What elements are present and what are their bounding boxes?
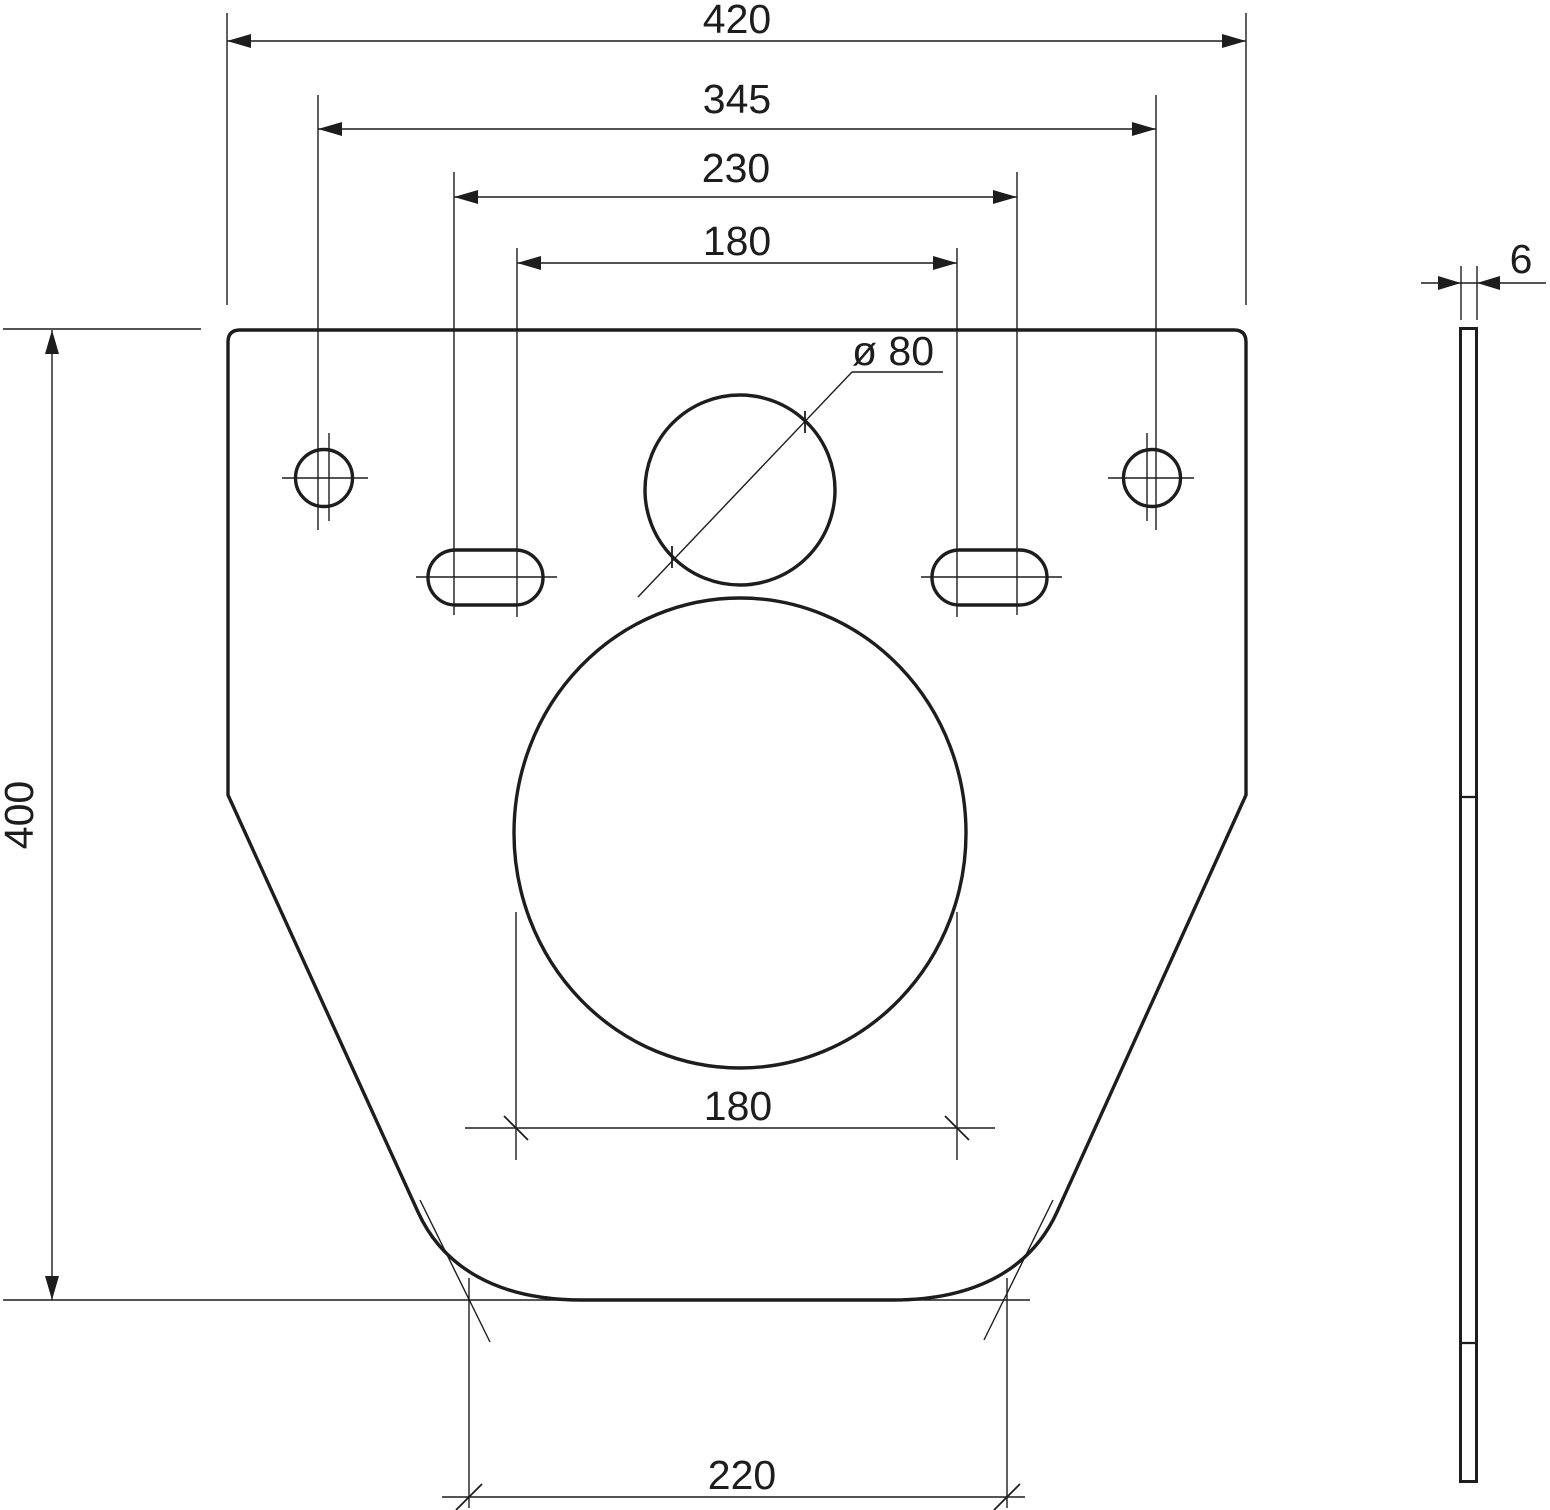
dim-label-345: 345 [703, 76, 771, 122]
dim-label-220: 220 [708, 1452, 776, 1498]
tangent-extension-left [420, 1200, 490, 1342]
dim-label-230: 230 [702, 145, 770, 191]
arrow-down-icon [45, 1276, 59, 1300]
arrow-left-icon [1477, 276, 1500, 290]
tangent-extension-right [984, 1200, 1053, 1340]
dim-label-420: 420 [703, 0, 771, 42]
dimension-220: 220 [420, 1200, 1053, 1510]
drain-opening-ellipse [514, 598, 966, 1068]
arrow-left-icon [227, 34, 251, 48]
technical-drawing-canvas: 420 345 230 180 ø 80 [0, 0, 1550, 1510]
dimension-180-top: 180 [517, 218, 957, 617]
arrow-right-icon [933, 256, 957, 270]
technical-drawing-page: 420 345 230 180 ø 80 [0, 0, 1550, 1510]
dimension-6: 6 [1421, 236, 1546, 320]
plate-outline [228, 330, 1246, 1300]
leader-diagonal [638, 372, 852, 597]
side-profile [1461, 329, 1477, 1482]
arrow-right-icon [1132, 122, 1156, 136]
dim-label-180-top: 180 [703, 218, 771, 264]
arrow-right-icon [993, 190, 1017, 204]
arrow-up-icon [45, 330, 59, 354]
arrow-right-icon [1222, 34, 1246, 48]
front-view [228, 330, 1246, 1300]
arrow-left-icon [517, 256, 541, 270]
dimension-diameter-80: ø 80 [638, 328, 943, 597]
arrow-left-icon [454, 190, 478, 204]
dim-label-diameter-80: ø 80 [852, 328, 934, 374]
side-view [1459, 329, 1478, 1482]
arrow-left-icon [318, 122, 342, 136]
dim-label-400: 400 [0, 781, 42, 849]
dim-label-6: 6 [1510, 236, 1533, 282]
dim-label-180-bottom: 180 [704, 1083, 772, 1129]
dimension-230: 230 [454, 145, 1017, 615]
arrow-right-icon [1438, 276, 1461, 290]
